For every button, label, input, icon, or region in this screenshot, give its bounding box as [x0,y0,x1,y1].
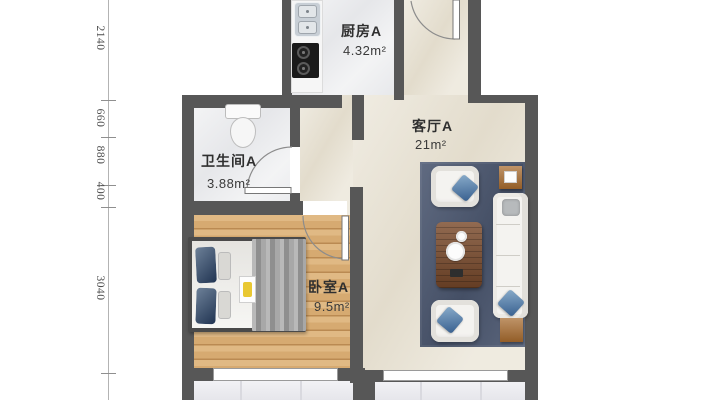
dimension-400: 400 [92,174,108,208]
dimension-660: 660 [92,101,108,135]
entry-door [411,0,460,39]
kitchen-label: 厨房A [341,21,382,41]
bathroom-area: 3.88m² [207,176,250,191]
living-area: 21m² [415,137,447,152]
floor-plan: 厨房A 4.32m² 客厅A 21m² 卫生间A 3.88m² 卧室A 9.5m… [0,0,712,400]
dimension-3040: 3040 [92,271,108,305]
ruler-line [108,0,109,400]
dimension-880: 880 [92,138,108,172]
ruler-tick [101,373,116,374]
bedroom-area: 9.5m² [314,299,350,314]
kitchen-area: 4.32m² [343,43,386,58]
bedroom-door [303,216,349,260]
bedroom-label: 卧室A [308,277,349,297]
dimension-2140: 2140 [92,21,108,55]
living-label: 客厅A [412,116,453,136]
bathroom-label: 卫生间A [201,151,257,171]
